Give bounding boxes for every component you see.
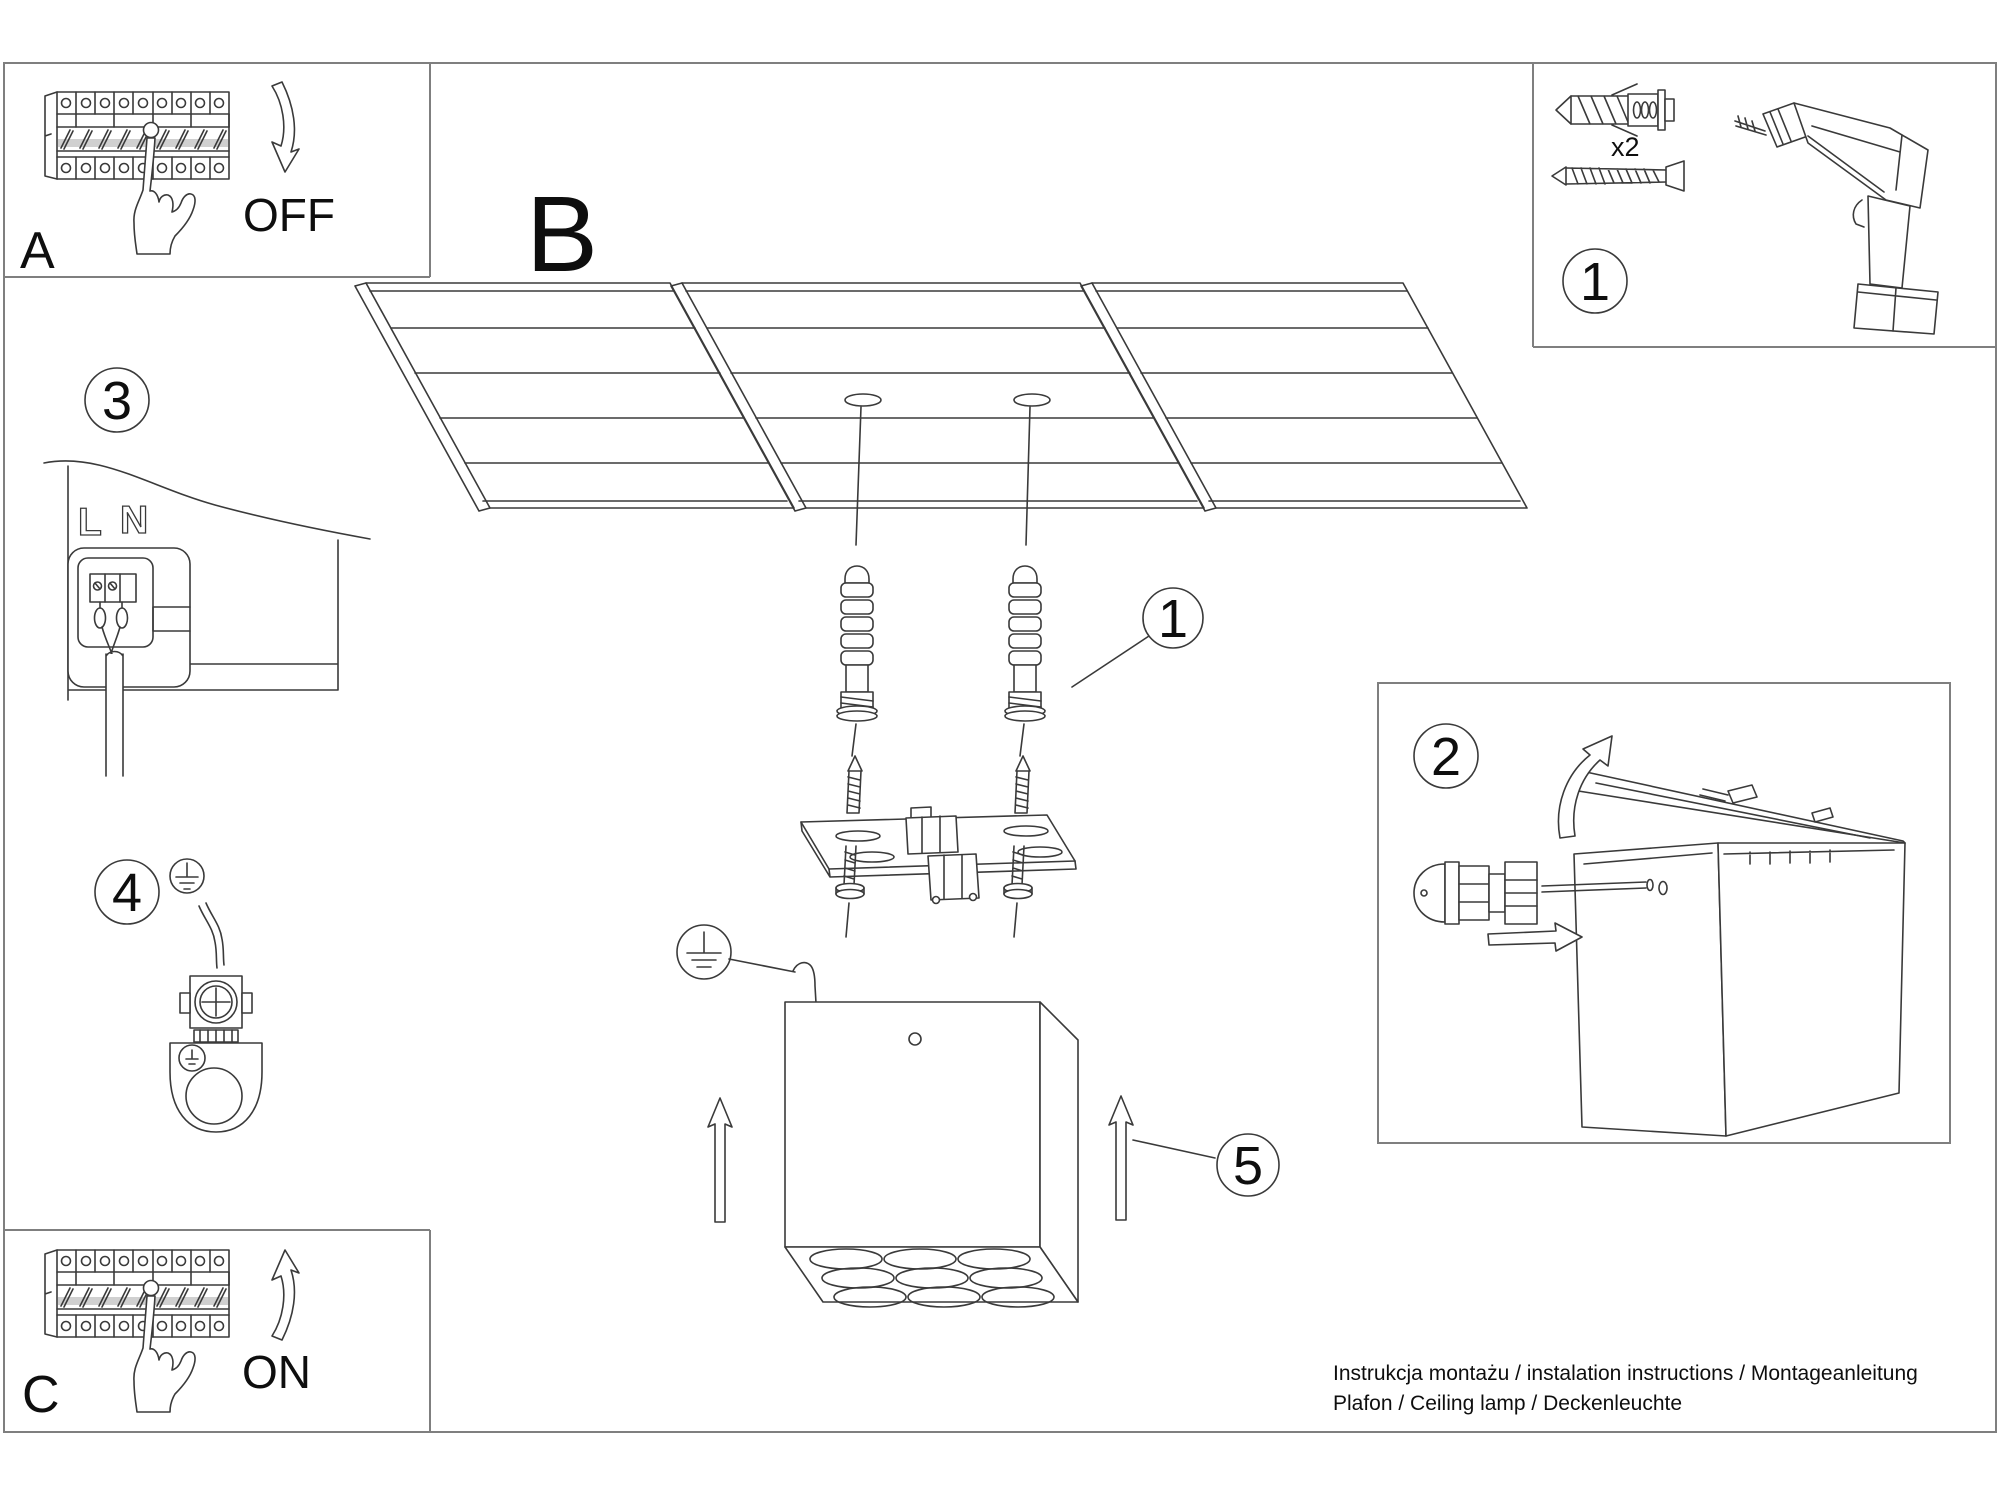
anchors-callout: 1: [1072, 588, 1203, 687]
wall-plug: [837, 566, 877, 756]
mount-callout: 5: [1133, 1134, 1279, 1196]
gland-hole: [1659, 882, 1667, 895]
mounting-screw: [1015, 756, 1030, 813]
drill-icon: [1735, 103, 1938, 334]
ground-callout: [677, 925, 816, 1003]
step-badge-5: 5: [1233, 1136, 1263, 1196]
panel-a-letter: A: [20, 222, 55, 280]
footer-title-line: Instrukcja montażu / instalation instruc…: [1333, 1362, 1918, 1385]
ground-pigtail-wire: [793, 963, 816, 1003]
step-badge-wiring: 3: [102, 371, 132, 431]
panel-hardware: x2 1: [1552, 84, 1938, 334]
terminal-neutral-label: N: [120, 499, 148, 542]
wall-plug: [1005, 566, 1045, 756]
on-label: ON: [242, 1346, 311, 1398]
terminal-live-label: L: [78, 501, 102, 544]
step-badge-gland: 2: [1431, 727, 1461, 787]
panel-mains-wiring: 3 L N: [44, 368, 370, 776]
ground-lug-drawing: [170, 976, 262, 1132]
panel-b-letter: B: [526, 173, 598, 294]
ceiling-panels: [355, 283, 1527, 545]
up-arrow-icon: [1109, 1096, 1133, 1220]
mounting-screw: [847, 756, 862, 813]
ceiling-lamp-box: [785, 1002, 1078, 1307]
off-label: OFF: [243, 189, 335, 241]
exploded-assembly: 1: [677, 566, 1279, 1307]
panel-breaker-off: A OFF: [20, 82, 335, 280]
instruction-drawing: A OFF C ON B 1: [0, 0, 2000, 1500]
ceiling-overview: B: [355, 173, 1527, 545]
footer-product-line: Plafon / Ceiling lamp / Deckenleuchte: [1333, 1392, 1682, 1415]
instruction-sheet: A OFF C ON B 1: [0, 0, 2000, 1500]
step-badge-1: 1: [1158, 589, 1188, 649]
lamp-housing-open: [1572, 772, 1905, 1136]
wall-plug-horizontal: [1556, 84, 1674, 136]
footer: Instrukcja montażu / instalation instruc…: [1333, 1362, 1918, 1415]
insert-arrow-icon: [1488, 923, 1582, 951]
up-arrow-icon: [708, 1098, 732, 1222]
panel-cable-gland: 2: [1414, 724, 1905, 1136]
panel-grounding: 4: [95, 859, 262, 1132]
ceiling-drill-hole: [845, 394, 881, 406]
ceiling-drill-hole: [1014, 394, 1050, 406]
quantity-label: x2: [1611, 132, 1640, 162]
arrow-down-icon: [272, 82, 299, 172]
step-badge-ground: 4: [112, 863, 142, 923]
step-badge-hardware: 1: [1580, 252, 1610, 312]
panel-breaker-on: C ON: [22, 1250, 311, 1424]
screw-horizontal: [1552, 161, 1684, 191]
arrow-up-icon: [272, 1250, 299, 1340]
ground-wire: [199, 903, 224, 968]
panel-c-letter: C: [22, 1366, 60, 1424]
